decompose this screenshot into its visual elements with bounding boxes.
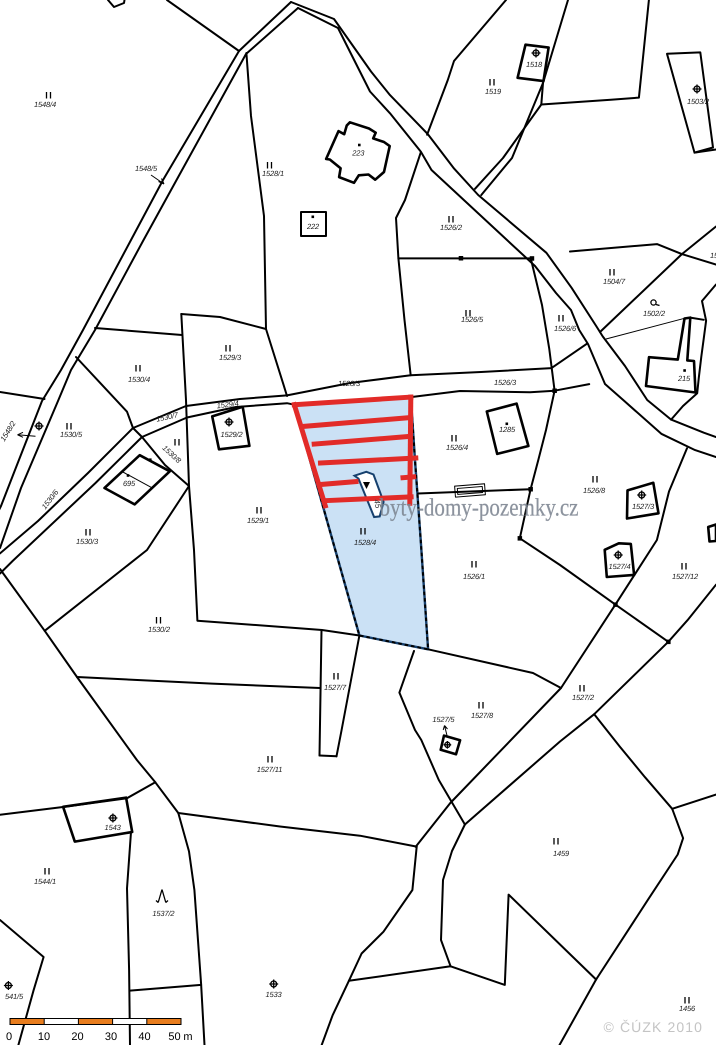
svg-text:222: 222 bbox=[306, 222, 320, 231]
svg-text:1526/2: 1526/2 bbox=[440, 223, 463, 232]
svg-text:1543: 1543 bbox=[105, 823, 122, 832]
svg-text:20: 20 bbox=[71, 1031, 83, 1043]
svg-text:1537/2: 1537/2 bbox=[152, 909, 175, 918]
svg-text:0: 0 bbox=[6, 1031, 12, 1043]
svg-text:1528/1: 1528/1 bbox=[262, 169, 284, 178]
svg-text:1456: 1456 bbox=[679, 1004, 696, 1013]
svg-text:1529/1: 1529/1 bbox=[247, 516, 269, 525]
svg-text:1544/1: 1544/1 bbox=[34, 877, 56, 886]
svg-text:1528/3: 1528/3 bbox=[338, 379, 361, 388]
svg-text:1527/12: 1527/12 bbox=[672, 572, 699, 581]
svg-text:15: 15 bbox=[710, 251, 716, 260]
svg-text:1527/2: 1527/2 bbox=[572, 693, 595, 702]
svg-text:1530/2: 1530/2 bbox=[148, 625, 171, 634]
svg-text:1526/1: 1526/1 bbox=[463, 572, 485, 581]
svg-text:1527/4: 1527/4 bbox=[608, 562, 630, 571]
svg-text:1503/2: 1503/2 bbox=[687, 97, 710, 106]
svg-text:40: 40 bbox=[138, 1031, 150, 1043]
svg-text:1526/5: 1526/5 bbox=[461, 315, 484, 324]
svg-text:30: 30 bbox=[105, 1031, 117, 1043]
svg-text:1528/4: 1528/4 bbox=[354, 538, 376, 547]
svg-text:1548/5: 1548/5 bbox=[135, 164, 158, 173]
svg-text:1530/5: 1530/5 bbox=[60, 430, 83, 439]
svg-text:1519: 1519 bbox=[485, 87, 502, 96]
svg-text:1518: 1518 bbox=[526, 60, 543, 69]
svg-text:1530/3: 1530/3 bbox=[76, 537, 99, 546]
svg-text:1285: 1285 bbox=[499, 425, 516, 434]
svg-text:541/5: 541/5 bbox=[5, 992, 24, 1001]
svg-text:695: 695 bbox=[123, 479, 136, 488]
svg-text:1526/3: 1526/3 bbox=[494, 378, 517, 387]
svg-text:1526/8: 1526/8 bbox=[583, 486, 606, 495]
svg-text:10: 10 bbox=[38, 1031, 50, 1043]
svg-text:1530/4: 1530/4 bbox=[128, 375, 150, 384]
svg-text:m: m bbox=[183, 1031, 192, 1043]
svg-text:1548/4: 1548/4 bbox=[34, 100, 56, 109]
svg-text:© ČÚZK 2010: © ČÚZK 2010 bbox=[604, 1019, 703, 1035]
svg-text:1527/3: 1527/3 bbox=[632, 502, 655, 511]
svg-text:1526/6: 1526/6 bbox=[554, 324, 577, 333]
svg-text:1533: 1533 bbox=[265, 990, 282, 999]
svg-text:byty-domy-pozemky.cz: byty-domy-pozemky.cz bbox=[380, 495, 579, 522]
svg-text:1527/7: 1527/7 bbox=[324, 683, 347, 692]
svg-text:223: 223 bbox=[351, 148, 365, 157]
svg-text:1529/3: 1529/3 bbox=[219, 353, 242, 362]
svg-text:1459: 1459 bbox=[553, 849, 570, 858]
svg-text:1527/8: 1527/8 bbox=[471, 711, 494, 720]
svg-text:1504/7: 1504/7 bbox=[603, 277, 626, 286]
svg-text:215: 215 bbox=[677, 374, 691, 383]
svg-text:1527/5: 1527/5 bbox=[432, 715, 455, 724]
svg-text:50: 50 bbox=[168, 1031, 180, 1043]
svg-text:1529/2: 1529/2 bbox=[220, 430, 243, 439]
svg-text:1526/4: 1526/4 bbox=[446, 443, 468, 452]
svg-text:1527/11: 1527/11 bbox=[257, 765, 283, 774]
svg-text:1502/2: 1502/2 bbox=[643, 309, 666, 318]
